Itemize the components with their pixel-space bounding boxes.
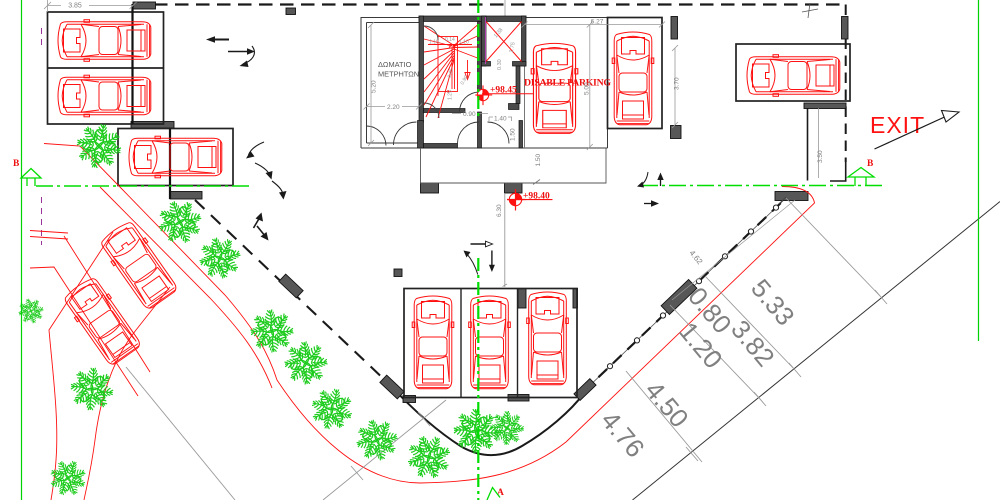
svg-text:1.40: 1.40 <box>494 116 507 123</box>
svg-text:3.85: 3.85 <box>68 3 82 10</box>
svg-text:1.10: 1.10 <box>429 40 439 46</box>
svg-text:3.70: 3.70 <box>674 77 681 90</box>
svg-text:1.50: 1.50 <box>510 128 517 141</box>
svg-text:1.25: 1.25 <box>448 90 454 100</box>
svg-text:A: A <box>497 488 504 498</box>
svg-text:5.00: 5.00 <box>584 82 591 95</box>
svg-text:B: B <box>13 159 20 169</box>
svg-text:3.50: 3.50 <box>817 150 824 163</box>
svg-text:0.14: 0.14 <box>445 37 455 43</box>
svg-text:6.30: 6.30 <box>496 204 503 217</box>
svg-text:B: B <box>867 159 874 169</box>
svg-text:6.27: 6.27 <box>591 19 604 26</box>
svg-text:DISABLE PARKING: DISABLE PARKING <box>524 78 611 89</box>
svg-text:EXIT: EXIT <box>870 112 925 138</box>
svg-text:1.10: 1.10 <box>459 40 469 46</box>
svg-text:ΔΩΜΑΤΙΟ: ΔΩΜΑΤΙΟ <box>378 60 412 69</box>
svg-text:1.50: 1.50 <box>535 153 542 166</box>
svg-text:ΜΕΤΡΗΤΩΝ: ΜΕΤΡΗΤΩΝ <box>378 70 419 79</box>
svg-text:5.20: 5.20 <box>371 80 378 93</box>
svg-text:2.20: 2.20 <box>387 104 400 111</box>
svg-text:0.90: 0.90 <box>463 111 476 118</box>
svg-text:0.30: 0.30 <box>497 59 503 70</box>
